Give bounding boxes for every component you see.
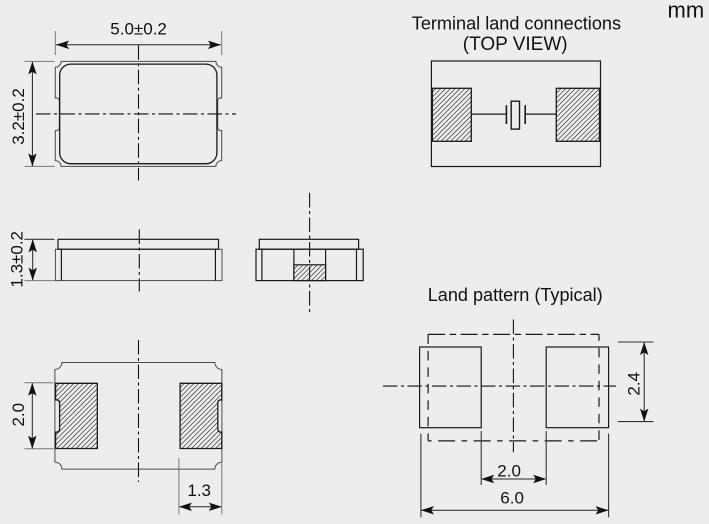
svg-text:Terminal land connections: Terminal land connections [412, 14, 621, 34]
svg-text:5.0±0.2: 5.0±0.2 [110, 20, 167, 39]
svg-text:Land pattern (Typical): Land pattern (Typical) [428, 285, 603, 305]
svg-text:(TOP VIEW): (TOP VIEW) [463, 34, 568, 55]
svg-text:2.0: 2.0 [9, 403, 28, 427]
svg-text:6.0: 6.0 [500, 489, 524, 508]
svg-text:1.3±0.2: 1.3±0.2 [8, 231, 27, 288]
svg-text:2.0: 2.0 [497, 461, 521, 480]
svg-text:3.2±0.2: 3.2±0.2 [9, 88, 28, 145]
svg-text:2.4: 2.4 [625, 372, 644, 396]
svg-text:mm: mm [668, 0, 705, 22]
svg-text:1.3: 1.3 [187, 481, 211, 500]
